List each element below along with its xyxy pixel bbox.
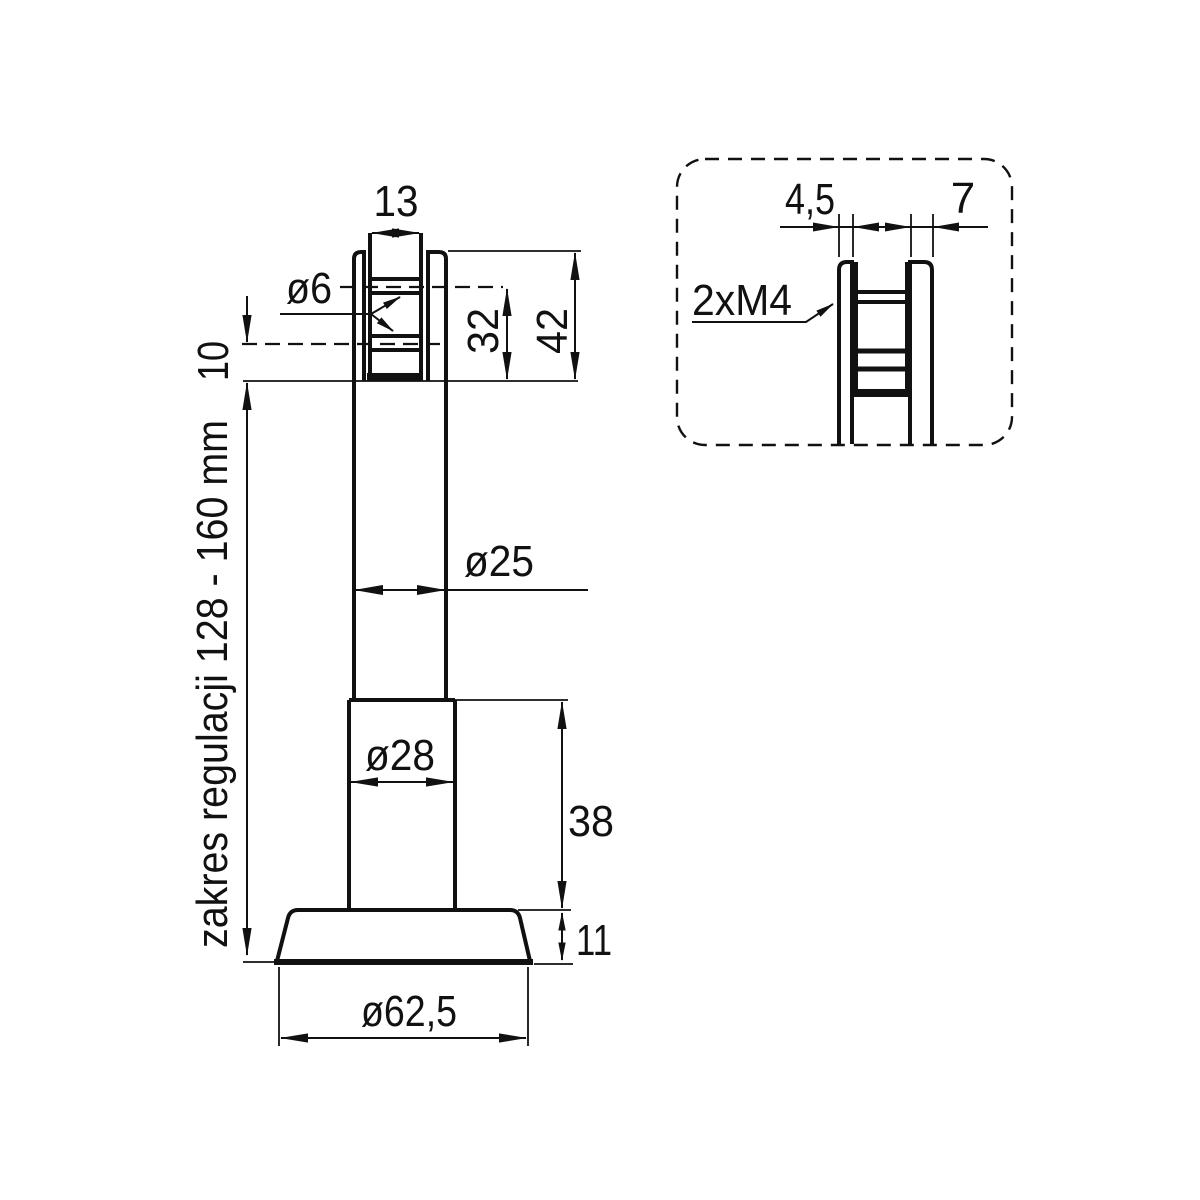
arrowhead [885,223,911,232]
main-view: 13 ø6 42 32 10 zakres regulacji 128 - 16… [188,177,614,1046]
tube [354,381,446,700]
arrowhead [354,585,383,595]
dim-label-thread: 2xM4 [692,276,792,325]
technical-drawing-canvas: 13 ø6 42 32 10 zakres regulacji 128 - 16… [0,0,1200,1200]
dim-label-offset: 10 [189,341,238,381]
leader-arrow-lower-hole [371,314,393,331]
dim-label-sleeve-diameter: ø28 [365,731,435,780]
detail-plate-left [839,262,852,444]
dim-label-plate-right-thickness: 7 [951,174,975,223]
detail-plate-right [910,262,932,444]
clamp-plate-right [428,252,446,381]
arrowhead [933,223,959,232]
base-outline [277,910,530,961]
detail-insert-bottom-bar [853,389,910,397]
dim-label-base-height: 11 [576,916,612,965]
dim-label-clamp-height: 42 [528,308,577,354]
base [274,910,533,962]
dim-label-hole-diameter: ø6 [286,264,332,313]
dim-label-base-diameter: ø62,5 [361,987,457,1036]
clamp-plate-left [354,252,364,381]
arrowhead [417,585,446,595]
dim-label-top-width: 13 [374,177,419,226]
dim-label-slot-depth: 32 [459,308,508,354]
clamp-body [354,233,446,381]
dim-label-sleeve-height: 38 [568,797,614,846]
dim-label-tube-diameter: ø25 [464,537,534,586]
detail-view: 4,5 7 2xM4 [677,159,1012,445]
leader-arrow-upper-hole [371,297,400,314]
insert-bottom-bar [367,373,423,381]
arrowhead [853,223,879,232]
detail-clamp [839,262,932,444]
dim-label-adjustment-range: zakres regulacji 128 - 160 mm [188,420,237,948]
dim-label-plate-left-thickness: 4,5 [785,175,835,224]
technical-drawing: 13 ø6 42 32 10 zakres regulacji 128 - 16… [0,0,1200,1200]
